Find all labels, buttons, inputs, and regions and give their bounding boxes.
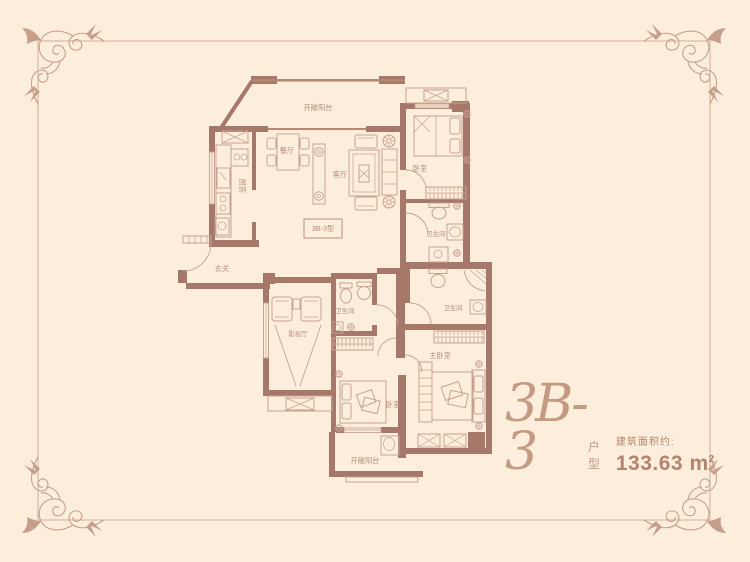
room-label-bathroom-top: 卫生间 [426,229,445,238]
area-info: 建筑面积约: 133.63 m2 [616,433,715,476]
walls [178,76,492,477]
room-label-media-room: 影视厅 [288,329,308,338]
unit-tag: 3B-3型 [304,219,342,238]
room-label-bedroom-bottom: 卧室 [386,400,400,409]
entry-threshold [183,236,211,243]
master-bedroom-furniture [418,331,485,447]
bedroom-bottom-furniture [336,371,386,431]
corner-ornament-top-left [22,24,104,104]
plan-title-script: 3B-3 [505,380,586,476]
bathroom-mid-fixtures [332,282,373,350]
area-label: 建筑面积约: [616,433,715,448]
room-label-dining: 餐厅 [280,146,294,155]
corner-ornament-bottom-left [22,457,104,537]
floor-plan-drawing: 3B-3型 开敞阳台 厨房 餐厅 客厅 玄关 卧室 卫生间 影视厅 卫生间 卫生… [0,0,750,562]
unit-tag-label: 3B-3型 [312,224,334,233]
area-value: 133.63 m2 [616,450,715,474]
living-room-sofa-set [349,135,397,210]
room-label-master-bedroom: 主卧室 [429,351,451,360]
room-label-bathroom-right: 卫生间 [443,303,462,312]
tv-cabinet [313,144,325,204]
room-label-balcony-top: 开敞阳台 [304,103,333,112]
room-label-bedroom-top: 卧室 [413,164,427,173]
corner-ornament-top-right [644,24,726,104]
room-label-balcony-bottom: 开敞阳台 [351,456,380,465]
room-label-kitchen: 厨房 [238,179,247,193]
plan-title-block: 3B-3 户型 建筑面积约: 133.63 m2 [505,414,705,476]
plan-title-suffix: 户型 [588,438,601,472]
room-label-entry: 玄关 [215,264,229,273]
room-label-living: 客厅 [333,170,347,179]
floor-plan-page: 3B-3型 开敞阳台 厨房 餐厅 客厅 玄关 卧室 卫生间 影视厅 卫生间 卫生… [0,0,750,562]
room-label-bathroom-mid: 卫生间 [335,306,354,315]
